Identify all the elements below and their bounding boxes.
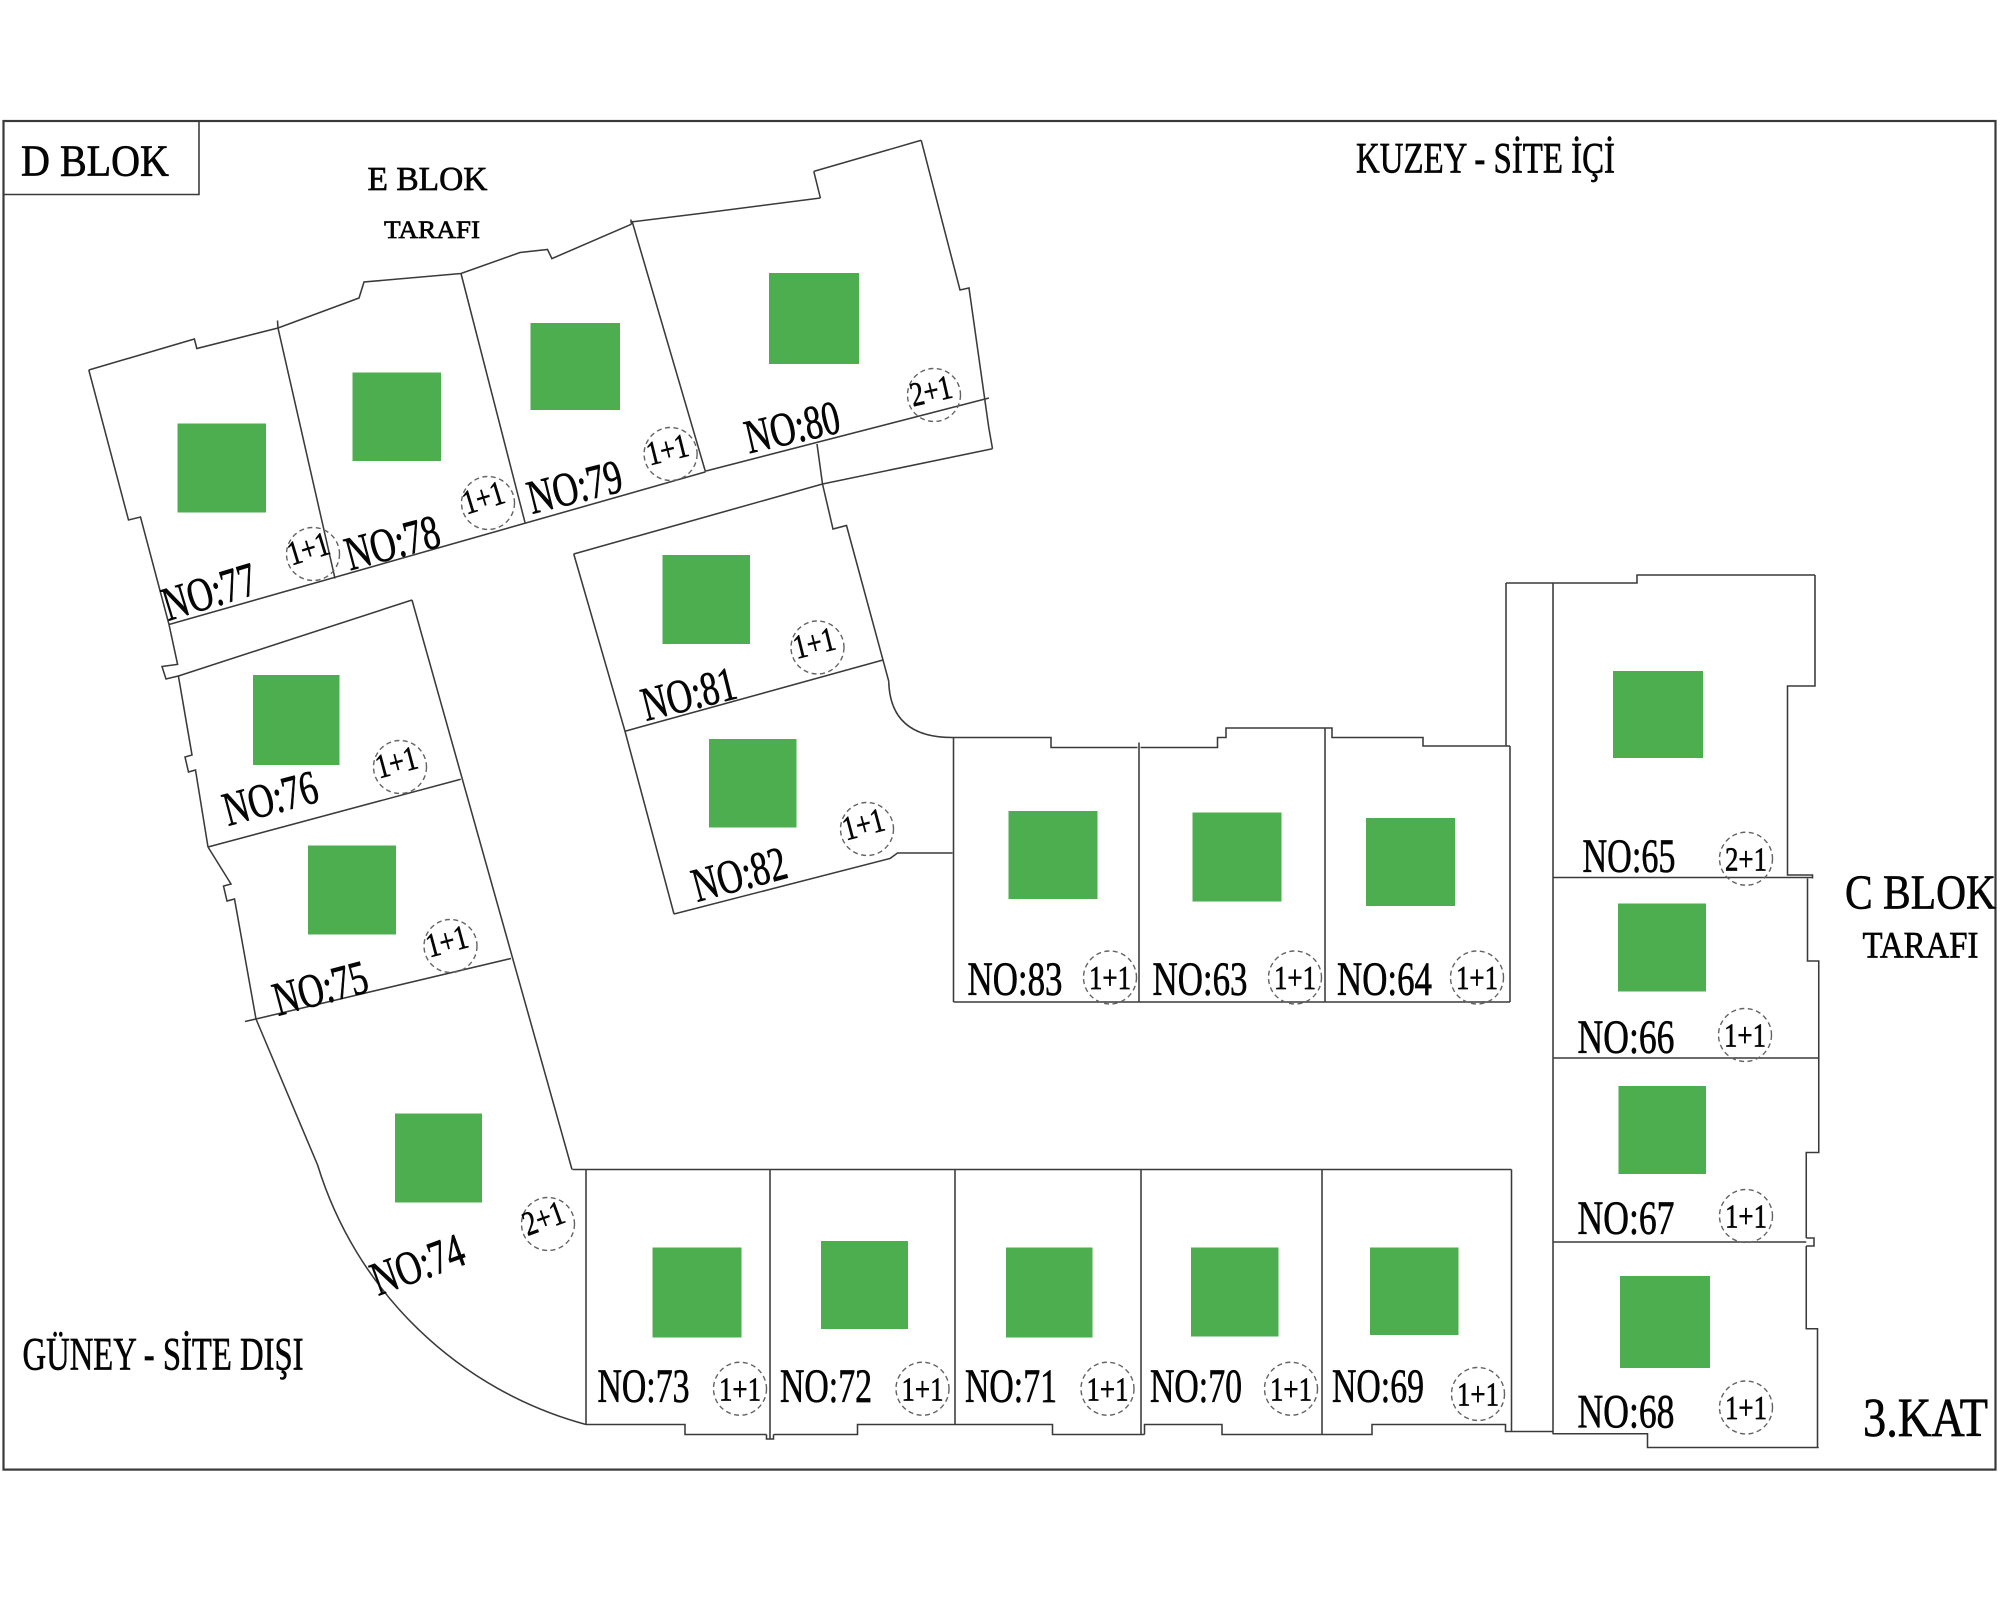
svg-text:NO:69: NO:69 [1332,1360,1424,1413]
svg-text:NO:83: NO:83 [968,953,1063,1006]
svg-text:1+1: 1+1 [1725,1199,1767,1236]
svg-text:NO:66: NO:66 [1578,1011,1675,1064]
svg-text:1+1: 1+1 [1274,960,1316,997]
svg-text:NO:63: NO:63 [1153,953,1248,1006]
svg-text:E BLOK: E BLOK [368,161,488,198]
svg-text:NO:71: NO:71 [965,1360,1057,1413]
svg-text:NO:68: NO:68 [1578,1386,1675,1439]
svg-text:TARAFI: TARAFI [1863,926,1979,967]
svg-text:1+1: 1+1 [1457,1377,1499,1414]
svg-text:1+1: 1+1 [1087,1372,1129,1409]
svg-text:NO:64: NO:64 [1337,953,1432,1006]
svg-text:1+1: 1+1 [1089,960,1131,997]
svg-text:NO:73: NO:73 [598,1360,690,1413]
svg-text:1+1: 1+1 [902,1372,944,1409]
svg-text:D BLOK: D BLOK [21,137,169,186]
svg-text:2+1: 2+1 [1725,842,1767,879]
svg-text:TARAFI: TARAFI [384,217,480,244]
svg-text:NO:65: NO:65 [1583,830,1676,883]
svg-text:NO:70: NO:70 [1150,1360,1242,1413]
svg-text:1+1: 1+1 [1270,1372,1312,1409]
svg-text:1+1: 1+1 [1724,1018,1766,1055]
svg-text:3.KAT: 3.KAT [1863,1387,1988,1448]
svg-text:C BLOK: C BLOK [1845,865,1996,920]
svg-text:1+1: 1+1 [1725,1390,1767,1427]
svg-text:NO:72: NO:72 [780,1360,872,1413]
svg-text:GÜNEY - SİTE DIŞI: GÜNEY - SİTE DIŞI [23,1329,304,1381]
svg-text:1+1: 1+1 [1456,960,1498,997]
svg-text:KUZEY - SİTE İÇİ: KUZEY - SİTE İÇİ [1356,136,1615,183]
svg-text:NO:67: NO:67 [1578,1192,1675,1245]
svg-text:1+1: 1+1 [719,1372,761,1409]
